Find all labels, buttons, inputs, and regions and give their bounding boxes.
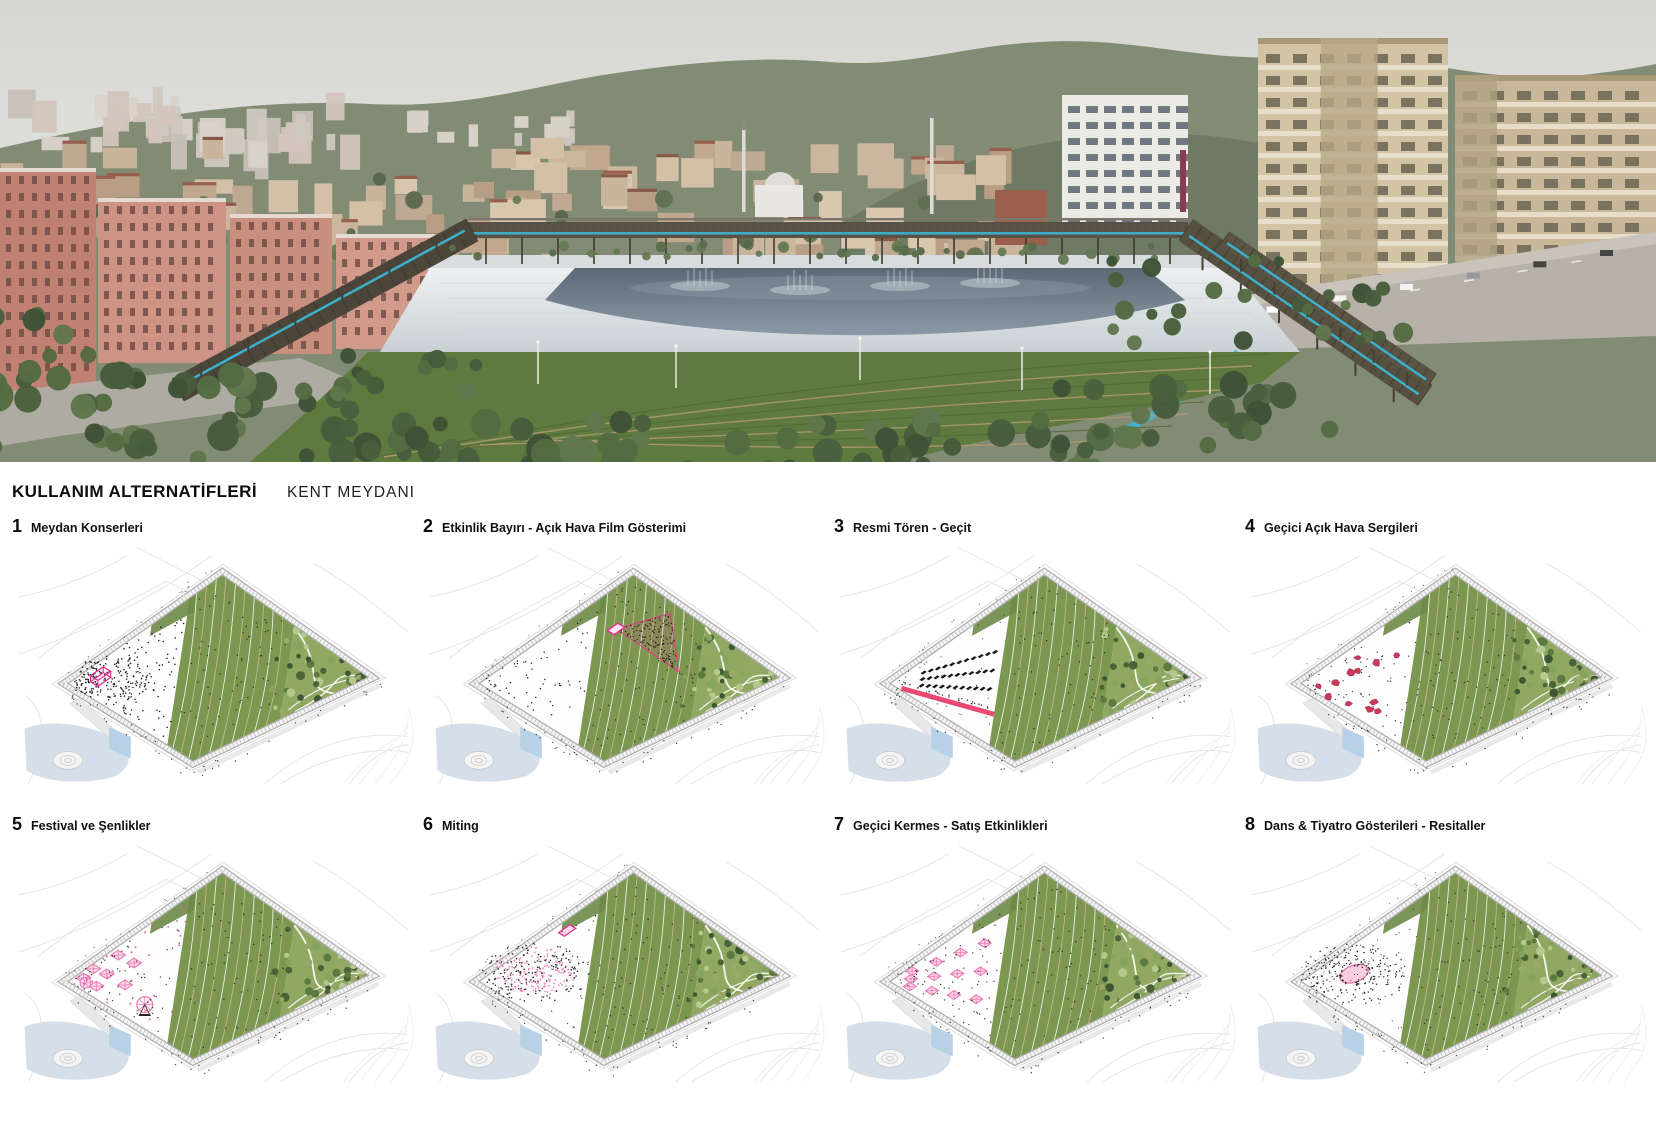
scenario-number: 5 xyxy=(12,814,22,835)
scenario-diagram xyxy=(1243,538,1650,784)
page-subtitle: KENT MEYDANI xyxy=(287,484,415,502)
scenario-title: Dans & Tiyatro Gösterileri - Resitaller xyxy=(1264,819,1485,833)
scenario-card-2: 2 Etkinlik Bayırı - Açık Hava Film Göste… xyxy=(421,516,828,784)
scenario-label: 1 Meydan Konserleri xyxy=(10,516,417,538)
scenario-card-8: 8 Dans & Tiyatro Gösterileri - Resitalle… xyxy=(1243,814,1650,1082)
scenario-label: 7 Geçici Kermes - Satış Etkinlikleri xyxy=(832,814,1239,836)
scenario-title: Festival ve Şenlikler xyxy=(31,819,151,833)
scenario-card-4: 4 Geçici Açık Hava Sergileri xyxy=(1243,516,1650,784)
scenario-diagram xyxy=(10,836,417,1082)
scenario-number: 1 xyxy=(12,516,22,537)
scenario-title: Miting xyxy=(442,819,479,833)
scenario-title: Resmi Tören - Geçit xyxy=(853,521,971,535)
scenario-card-7: 7 Geçici Kermes - Satış Etkinlikleri xyxy=(832,814,1239,1082)
scenario-number: 2 xyxy=(423,516,433,537)
scenario-label: 8 Dans & Tiyatro Gösterileri - Resitalle… xyxy=(1243,814,1650,836)
scenario-number: 8 xyxy=(1245,814,1255,835)
scenario-number: 7 xyxy=(834,814,844,835)
scenario-label: 5 Festival ve Şenlikler xyxy=(10,814,417,836)
scenario-title: Meydan Konserleri xyxy=(31,521,143,535)
scenario-label: 3 Resmi Tören - Geçit xyxy=(832,516,1239,538)
scenario-number: 3 xyxy=(834,516,844,537)
scenario-label: 4 Geçici Açık Hava Sergileri xyxy=(1243,516,1650,538)
page-title: KULLANIM ALTERNATİFLERİ xyxy=(12,482,257,502)
scenario-card-5: 5 Festival ve Şenlikler xyxy=(10,814,417,1082)
scenario-diagram xyxy=(1243,836,1650,1082)
scenario-label: 2 Etkinlik Bayırı - Açık Hava Film Göste… xyxy=(421,516,828,538)
scenario-number: 6 xyxy=(423,814,433,835)
alternatives-section: KULLANIM ALTERNATİFLERİ KENT MEYDANI 1 M… xyxy=(0,462,1656,1082)
panorama-illustration xyxy=(0,0,1656,462)
section-header: KULLANIM ALTERNATİFLERİ KENT MEYDANI xyxy=(12,482,1656,506)
scenario-diagram xyxy=(832,836,1239,1082)
scenario-diagram xyxy=(832,538,1239,784)
scenario-card-6: 6 Miting xyxy=(421,814,828,1082)
scenario-card-1: 1 Meydan Konserleri xyxy=(10,516,417,784)
scenario-title: Geçici Açık Hava Sergileri xyxy=(1264,521,1418,535)
scenario-number: 4 xyxy=(1245,516,1255,537)
scenario-card-3: 3 Resmi Tören - Geçit xyxy=(832,516,1239,784)
scenario-diagram xyxy=(421,538,828,784)
scenario-diagram xyxy=(10,538,417,784)
hero-rendering xyxy=(0,0,1656,462)
scenario-label: 6 Miting xyxy=(421,814,828,836)
scenario-grid: 1 Meydan Konserleri 2 Etkinlik Bayırı - … xyxy=(10,516,1650,1082)
presentation-board: KULLANIM ALTERNATİFLERİ KENT MEYDANI 1 M… xyxy=(0,0,1656,1125)
scenario-title: Geçici Kermes - Satış Etkinlikleri xyxy=(853,819,1048,833)
scenario-diagram xyxy=(421,836,828,1082)
scenario-title: Etkinlik Bayırı - Açık Hava Film Gösteri… xyxy=(442,521,686,535)
